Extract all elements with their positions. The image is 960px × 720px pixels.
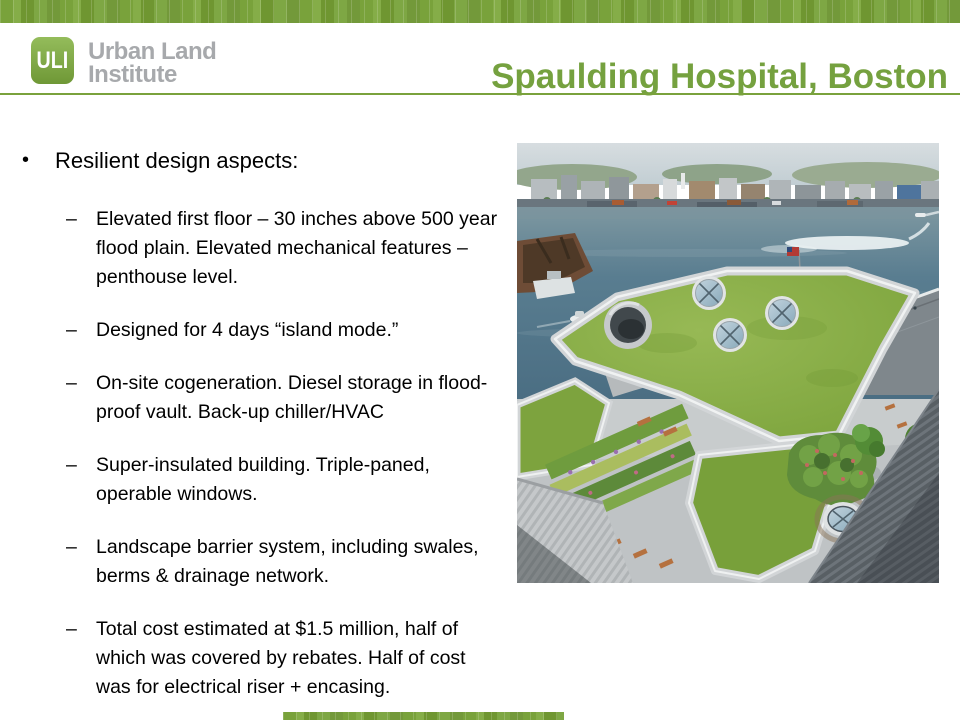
slide: ULI Urban Land Institute Spaulding Hospi… bbox=[0, 0, 960, 720]
bullet-line: Total cost estimated at $1.5 million, ha… bbox=[96, 615, 466, 644]
bullet-content: • Resilient design aspects: – Elevated f… bbox=[22, 146, 522, 720]
hospital-aerial-photo bbox=[517, 143, 939, 583]
dash-marker: – bbox=[66, 615, 96, 702]
org-name-line2: Institute bbox=[88, 63, 216, 86]
bottom-striped-banner bbox=[283, 712, 564, 720]
bullet-line: Designed for 4 days “island mode.” bbox=[96, 316, 398, 345]
roof-opening bbox=[604, 301, 652, 349]
bullet-line: Landscape barrier system, including swal… bbox=[96, 533, 479, 562]
bullet-line: which was covered by rebates. Half of co… bbox=[96, 644, 466, 673]
uli-logo-icon: ULI bbox=[31, 37, 74, 84]
bullet-line: penthouse level. bbox=[96, 263, 497, 292]
main-bullet: • Resilient design aspects: bbox=[22, 146, 522, 175]
bullet-item: – Landscape barrier system, including sw… bbox=[66, 533, 522, 591]
bullet-marker: • bbox=[22, 146, 55, 175]
bullet-item: – Designed for 4 days “island mode.” bbox=[66, 316, 522, 345]
bullet-line: operable windows. bbox=[96, 480, 430, 509]
uli-logo-text: ULI bbox=[37, 47, 69, 75]
bullet-item: – On-site cogeneration. Diesel storage i… bbox=[66, 369, 522, 427]
dash-marker: – bbox=[66, 533, 96, 591]
org-name-line1: Urban Land bbox=[88, 40, 216, 63]
bullet-line: Elevated first floor – 30 inches above 5… bbox=[96, 205, 497, 234]
slide-title: Spaulding Hospital, Boston bbox=[491, 57, 948, 97]
waterfront-piers bbox=[517, 199, 939, 208]
sub-bullet-list: – Elevated first floor – 30 inches above… bbox=[66, 205, 522, 702]
bullet-line: flood plain. Elevated mechanical feature… bbox=[96, 234, 497, 263]
bullet-line: was for electrical riser + encasing. bbox=[96, 673, 466, 702]
dash-marker: – bbox=[66, 205, 96, 292]
dash-marker: – bbox=[66, 369, 96, 427]
bullet-line: berms & drainage network. bbox=[96, 562, 479, 591]
main-bullet-text: Resilient design aspects: bbox=[55, 146, 298, 175]
bullet-item: – Elevated first floor – 30 inches above… bbox=[66, 205, 522, 292]
top-striped-banner bbox=[0, 0, 960, 23]
org-name: Urban Land Institute bbox=[88, 40, 216, 86]
header-divider bbox=[0, 93, 960, 95]
bullet-item: – Super-insulated building. Triple-paned… bbox=[66, 451, 522, 509]
bullet-item: – Total cost estimated at $1.5 million, … bbox=[66, 615, 522, 702]
bullet-line: On-site cogeneration. Diesel storage in … bbox=[96, 369, 487, 398]
dash-marker: – bbox=[66, 451, 96, 509]
dash-marker: – bbox=[66, 316, 96, 345]
bullet-line: proof vault. Back-up chiller/HVAC bbox=[96, 398, 487, 427]
bullet-line: Super-insulated building. Triple-paned, bbox=[96, 451, 430, 480]
